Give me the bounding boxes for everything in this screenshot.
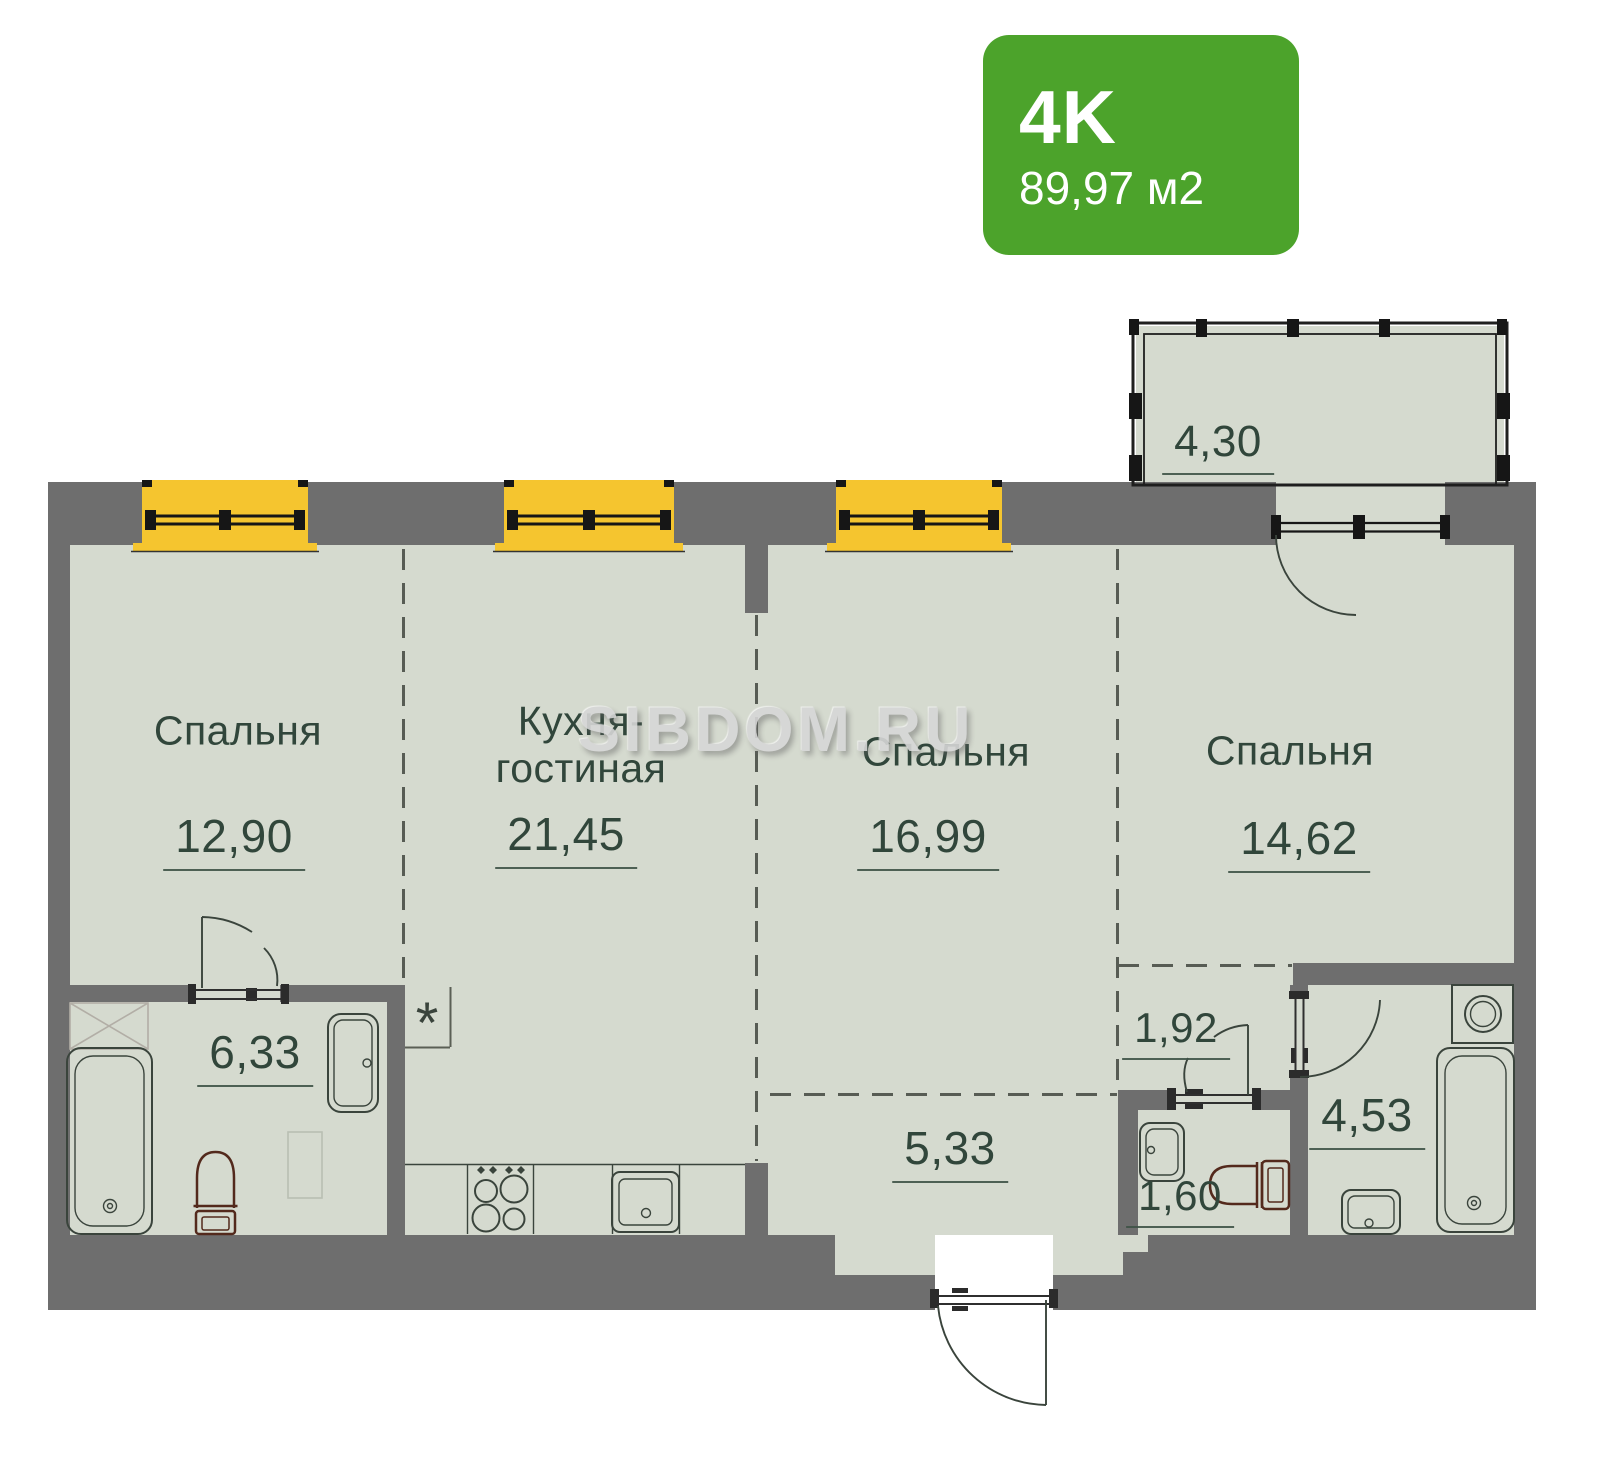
apartment-area-label: 89,97 м2: [1019, 161, 1204, 216]
kitchen-niche-marker: *: [416, 991, 439, 1056]
apartment-type-label: 4K: [1019, 74, 1117, 160]
area-value: 1,92: [1122, 1004, 1230, 1060]
room-area-wc: 1,60: [1126, 1172, 1234, 1228]
area-value: 1,60: [1126, 1172, 1234, 1228]
room-name-bedroom1: Спальня: [154, 708, 322, 755]
door-arc: [938, 1306, 1046, 1405]
area-value: 16,99: [857, 809, 999, 871]
window-3: [825, 480, 1013, 552]
area-value: 5,33: [892, 1121, 1008, 1183]
room-area-bedroom2: 16,99: [857, 809, 999, 871]
apartment-type-badge: 4K 89,97 м2: [983, 35, 1299, 255]
area-value: 12,90: [163, 809, 305, 871]
window-2: [493, 480, 685, 552]
window-1: [131, 480, 319, 552]
area-value: 14,62: [1228, 811, 1370, 873]
room-area-bathroom-second: 4,53: [1309, 1088, 1425, 1150]
room-area-bedroom1: 12,90: [163, 809, 305, 871]
area-value: 21,45: [495, 807, 637, 869]
area-value: 6,33: [197, 1025, 313, 1087]
room-area-balcony: 4,30: [1162, 417, 1274, 475]
site-watermark: SIBDOM.RU: [578, 694, 975, 766]
room-area-bedroom3: 14,62: [1228, 811, 1370, 873]
entrance-door: [930, 1288, 1058, 1405]
room-area-corridor: 1,92: [1122, 1004, 1230, 1060]
area-value: 4,53: [1309, 1088, 1425, 1150]
room-name-bedroom3: Спальня: [1206, 728, 1374, 775]
room-area-bathroom-main: 6,33: [197, 1025, 313, 1087]
floor-plan-page: *: [0, 0, 1600, 1460]
room-area-hallway: 5,33: [892, 1121, 1008, 1183]
area-value: 4,30: [1162, 417, 1274, 475]
room-area-kitchen: 21,45: [495, 807, 637, 869]
